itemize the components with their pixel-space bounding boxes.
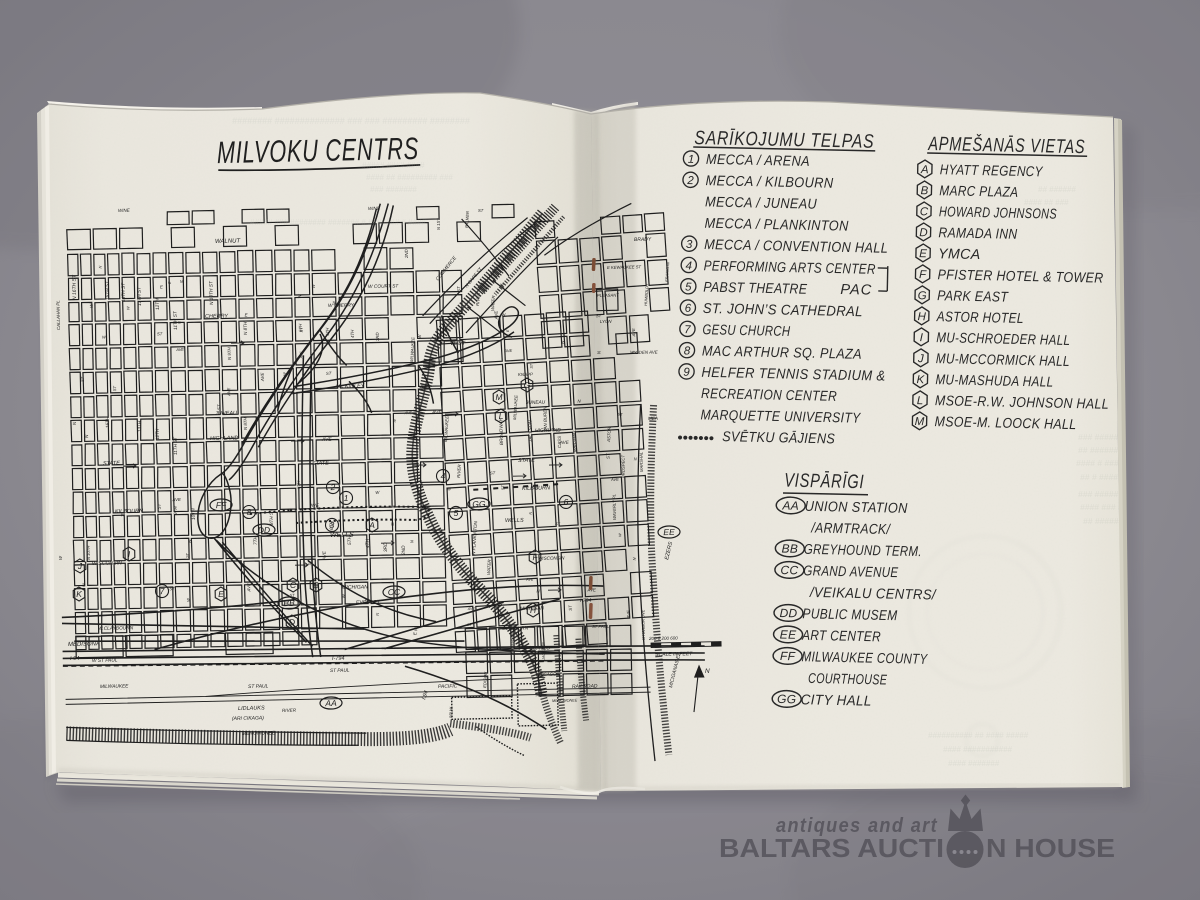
svg-text:antiques and art: antiques and art [776, 815, 938, 837]
svg-text:BALTARS AUCTI: BALTARS AUCTI [719, 835, 944, 863]
svg-text:N HOUSE: N HOUSE [986, 835, 1115, 863]
